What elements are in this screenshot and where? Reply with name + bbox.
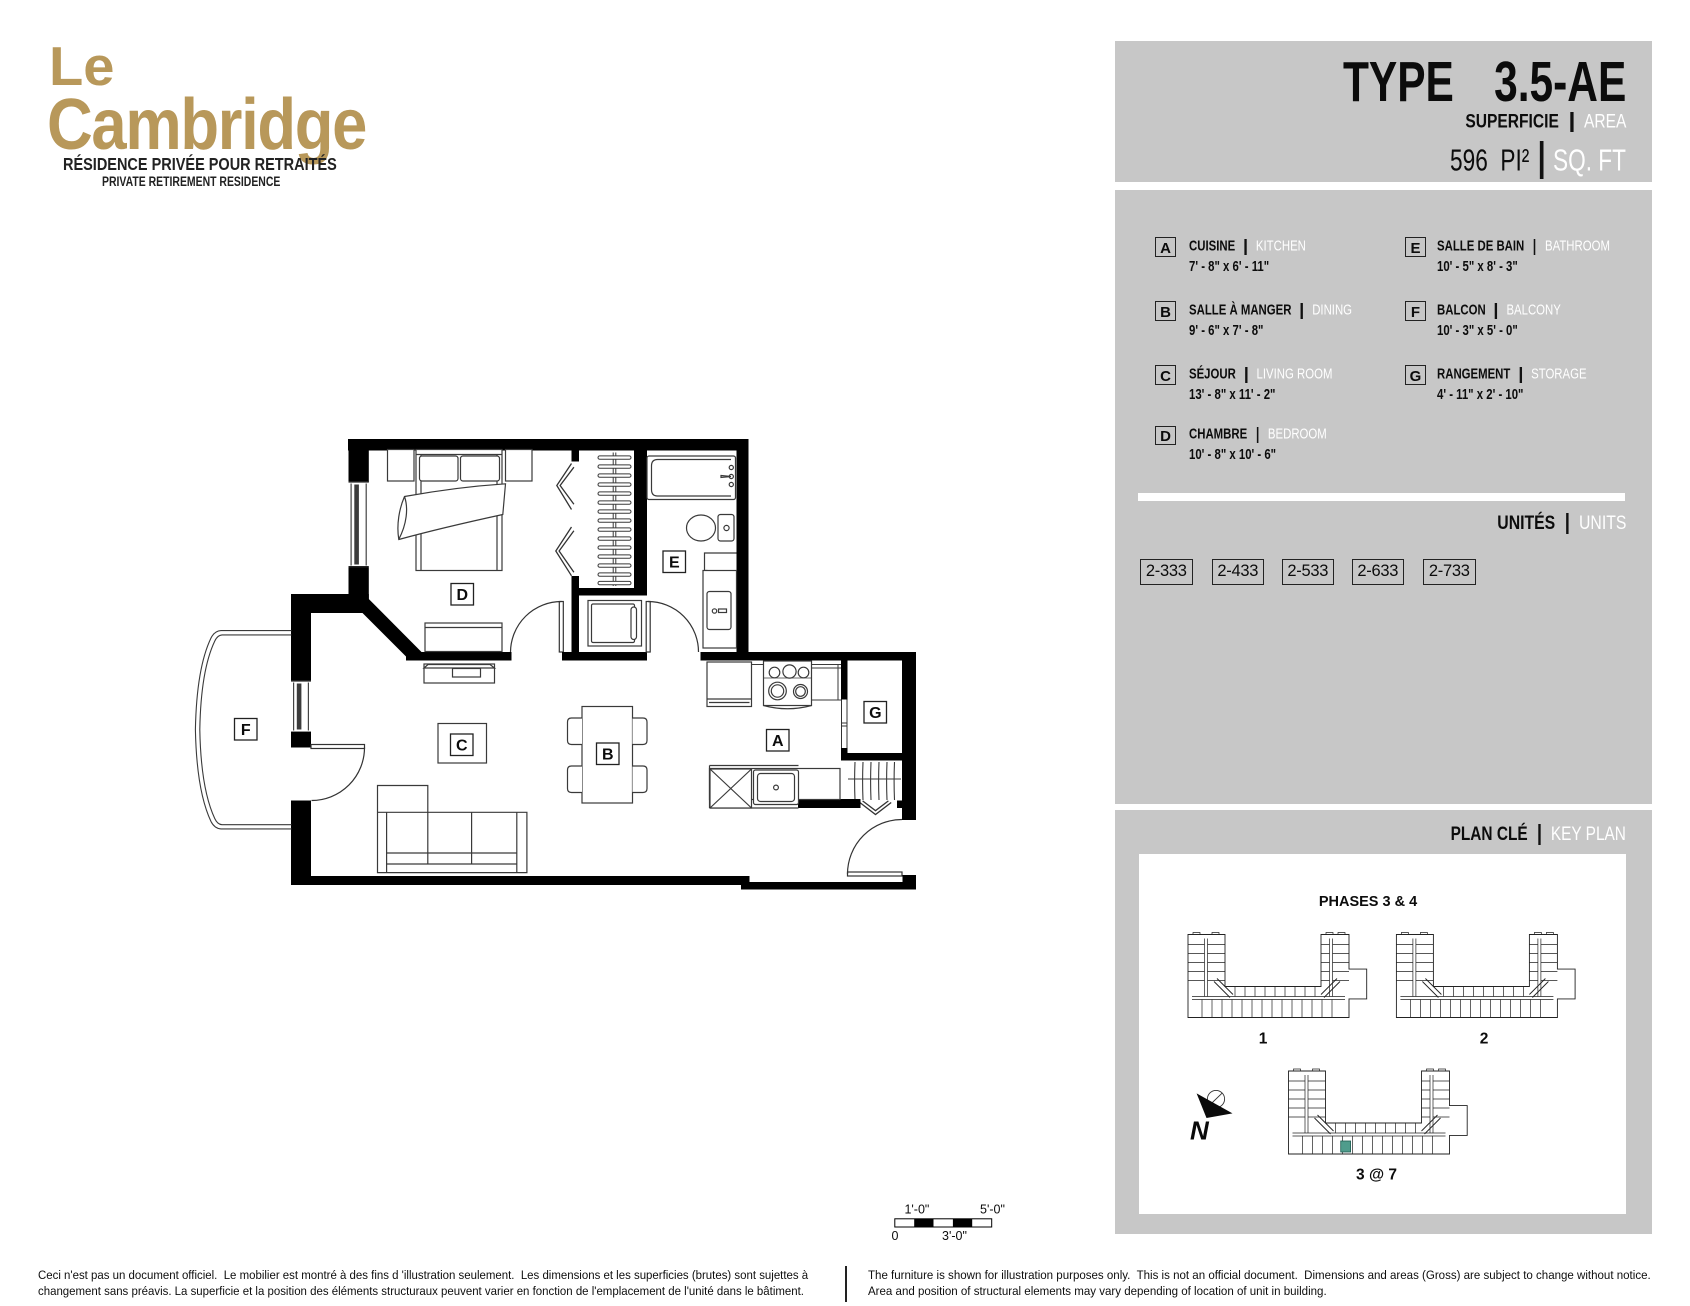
svg-text:F: F bbox=[241, 722, 251, 739]
svg-text:2: 2 bbox=[1480, 1030, 1489, 1047]
svg-text:G: G bbox=[869, 705, 881, 722]
svg-text:N: N bbox=[1190, 1115, 1210, 1145]
svg-text:3'-0": 3'-0" bbox=[942, 1229, 967, 1243]
svg-text:C: C bbox=[456, 738, 468, 755]
svg-text:PHASES 3 & 4: PHASES 3 & 4 bbox=[1319, 894, 1417, 910]
svg-text:1'-0": 1'-0" bbox=[904, 1203, 929, 1217]
svg-text:0: 0 bbox=[892, 1229, 899, 1243]
svg-text:E: E bbox=[669, 555, 680, 572]
svg-text:A: A bbox=[772, 733, 784, 750]
svg-text:1: 1 bbox=[1259, 1030, 1268, 1047]
svg-text:3 @ 7: 3 @ 7 bbox=[1356, 1166, 1397, 1183]
svg-text:D: D bbox=[457, 587, 469, 604]
svg-text:B: B bbox=[602, 747, 614, 764]
svg-text:5'-0": 5'-0" bbox=[980, 1203, 1005, 1217]
